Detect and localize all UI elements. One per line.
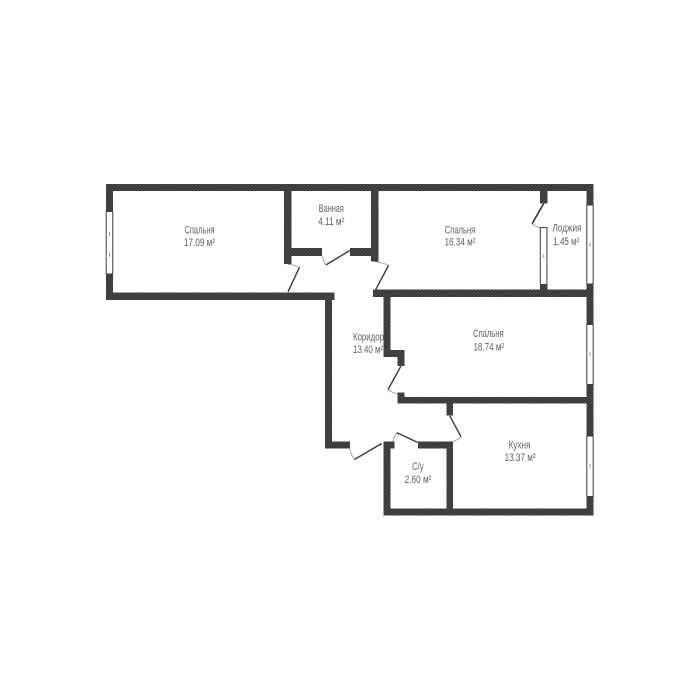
svg-text:Спальня: Спальня — [473, 328, 504, 340]
svg-text:17.09 м²: 17.09 м² — [184, 237, 215, 249]
svg-text:Спальня: Спальня — [445, 224, 476, 236]
svg-text:13.37 м²: 13.37 м² — [505, 452, 536, 464]
svg-text:Коридор: Коридор — [353, 331, 384, 343]
svg-text:4.11 м²: 4.11 м² — [318, 216, 344, 228]
svg-text:Кухня: Кухня — [509, 440, 531, 452]
svg-text:18.74 м²: 18.74 м² — [473, 342, 504, 354]
svg-text:С/у: С/у — [412, 461, 424, 473]
svg-text:13.40 м²: 13.40 м² — [353, 344, 383, 356]
svg-text:16.34 м²: 16.34 м² — [445, 236, 476, 248]
svg-text:Лоджия: Лоджия — [553, 222, 582, 234]
svg-text:1.45 м²: 1.45 м² — [553, 236, 579, 248]
svg-text:2.60 м²: 2.60 м² — [405, 474, 432, 486]
svg-text:Спальня: Спальня — [185, 225, 215, 237]
svg-text:Ванная: Ванная — [319, 203, 344, 215]
